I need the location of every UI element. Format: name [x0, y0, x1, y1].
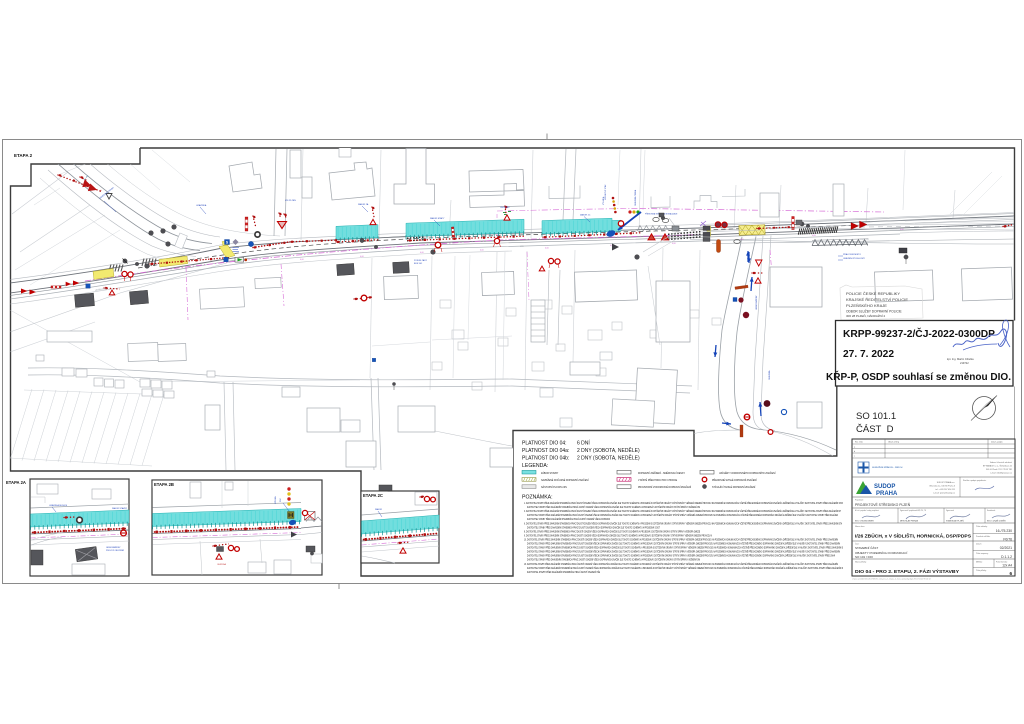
svg-text:12x A4: 12x A4	[1002, 564, 1012, 568]
svg-text:4,00: 4,00	[900, 229, 904, 231]
svg-text:Název akce:: Název akce:	[855, 526, 865, 528]
svg-text:306 28 PLZEŇ, NÁDRAŽNÍ 2: 306 28 PLZEŇ, NÁDRAŽNÍ 2	[846, 313, 886, 318]
svg-text:TRAŤ 180: TRAŤ 180	[860, 238, 870, 241]
svg-text:4,00: 4,00	[480, 250, 484, 252]
svg-text:4,00: 4,00	[740, 239, 744, 241]
svg-text:LEGENDA:: LEGENDA:	[522, 463, 548, 469]
svg-text:NÁSTUPNÍ PLOCHA IZS: NÁSTUPNÍ PLOCHA IZS	[541, 486, 567, 489]
svg-text:Obsah změny: Obsah změny	[888, 442, 899, 444]
svg-text:NAVRŽENÉ DOČASNÉ DOPRAVNÍ ZNAČ: NAVRŽENÉ DOČASNÉ DOPRAVNÍ ZNAČENÍ	[541, 479, 589, 482]
svg-text:ETAPA 2B: ETAPA 2B	[154, 482, 174, 487]
svg-text:JEDNOSMĚRNÝ: JEDNOSMĚRNÝ	[106, 546, 121, 549]
svg-text:PROVOZ OBJÍZDNÉ: PROVOZ OBJÍZDNÉ	[106, 549, 125, 552]
svg-text:D.1.1.2: D.1.1.2	[1001, 555, 1012, 559]
svg-text:16-/75.230: 16-/75.230	[996, 529, 1012, 533]
svg-text:POZNÁMKA:: POZNÁMKA:	[522, 494, 553, 501]
svg-text:ZÁBOR ETAPY: ZÁBOR ETAPY	[430, 217, 445, 220]
svg-text:PŘENOSNÉ SVISLÉ DOPRAVNÍ ZNAČE: PŘENOSNÉ SVISLÉ DOPRAVNÍ ZNAČENÍ	[712, 479, 757, 482]
svg-text:PLZEŇSKÉHO KRAJE: PLZEŇSKÉHO KRAJE	[846, 303, 887, 308]
svg-text:Datum:: Datum:	[976, 543, 982, 546]
svg-text:kpt. Ing. Martin Cibulka: kpt. Ing. Martin Cibulka	[947, 357, 974, 361]
svg-text:Razítko a podpis projektanta:: Razítko a podpis projektanta:	[963, 479, 987, 482]
svg-text:UZAVÍRKA: UZAVÍRKA	[196, 204, 207, 207]
svg-text:MIROSLAV PINKAS: MIROSLAV PINKAS	[900, 520, 919, 523]
svg-text:4,00: 4,00	[812, 235, 816, 237]
svg-text:Rev. číslo: Rev. číslo	[855, 442, 863, 444]
svg-text:OBJÍZDNÁ: OBJÍZDNÁ	[217, 563, 227, 566]
svg-text:2 DNY (SOBOTA, NEDĚLE): 2 DNY (SOBOTA, NEDĚLE)	[577, 453, 640, 461]
svg-text:KRPP-99237-2/ČJ-2022-0300DP: KRPP-99237-2/ČJ-2022-0300DP	[843, 327, 995, 340]
svg-text:ODBOR SLUŽBY DOPRAVNÍ POLICIE: ODBOR SLUŽBY DOPRAVNÍ POLICIE	[846, 309, 902, 314]
svg-text:ZÁBOR 2C: ZÁBOR 2C	[580, 214, 591, 217]
svg-text:4,00: 4,00	[672, 243, 676, 245]
svg-text:PRACOVNÍ MÍSTO: PRACOVNÍ MÍSTO	[843, 253, 861, 256]
svg-text:2 DNY (SOBOTA, NEDĚLE): 2 DNY (SOBOTA, NEDĚLE)	[577, 446, 640, 454]
svg-text:ZÁBOR STAVBY: ZÁBOR STAVBY	[541, 472, 559, 475]
svg-text:STÁVAJÍCÍ SVISLÉ DOPRAVNÍ ZNAČ: STÁVAJÍCÍ SVISLÉ DOPRAVNÍ ZNAČENÍ	[712, 486, 756, 489]
svg-text:ING. OTA MILSIMER: ING. OTA MILSIMER	[855, 520, 874, 523]
svg-text:4,00: 4,00	[360, 256, 364, 258]
svg-text:STANISLAV PLZEŇ: STANISLAV PLZEŇ	[946, 520, 964, 523]
svg-text:e-mail: praha@sudop.cz: e-mail: praha@sudop.cz	[933, 493, 955, 495]
svg-text:SUDOP PRAHA a.s.: SUDOP PRAHA a.s.	[937, 481, 956, 484]
svg-text:ZÁBOR 2A: ZÁBOR 2A	[358, 203, 369, 206]
svg-text:SUDOP: SUDOP	[874, 484, 895, 490]
svg-text:SO 101 / DIO: SO 101 / DIO	[855, 555, 874, 559]
svg-text:ING. LUKÁŠ DUNĚK: ING. LUKÁŠ DUNĚK	[987, 520, 1006, 523]
svg-text:Poměrné měřítko:: Poměrné měřítko:	[976, 535, 991, 538]
svg-text:JEDNOSMĚRNÝ: JEDNOSMĚRNÝ	[755, 295, 758, 310]
svg-text:POLICIE ČESKÉ REPUBLIKY: POLICIE ČESKÉ REPUBLIKY	[846, 291, 900, 296]
svg-text:4,00: 4,00	[300, 259, 304, 261]
svg-text:6: 6	[1009, 571, 1012, 576]
svg-text:VÝLUKA: VÝLUKA	[274, 496, 277, 504]
svg-text:(O): (O)	[820, 229, 825, 233]
svg-text:tel.: +420 267 094 111: tel.: +420 267 094 111	[935, 488, 956, 491]
svg-text:Číslo zakázky:: Číslo zakázky:	[976, 525, 988, 528]
svg-text:ČÁST D: ČÁST D	[856, 424, 894, 435]
svg-text:OMEZENÍ RYCHLOSTI: OMEZENÍ RYCHLOSTI	[843, 257, 865, 260]
svg-text:UZÁVĚRY VODOROVNÉHO DOPRAVNÍHO: UZÁVĚRY VODOROVNÉHO DOPRAVNÍHO ZNAČENÍ	[719, 472, 776, 475]
svg-text:Číslo přílohy:: Číslo přílohy:	[976, 569, 987, 572]
svg-text:PRAHA: PRAHA	[876, 491, 898, 497]
svg-text:PLATNOST DIO 04a:: PLATNOST DIO 04a:	[522, 448, 569, 454]
svg-text:Olšanská 1a, 130 80 Praha 3: Olšanská 1a, 130 80 Praha 3	[929, 486, 956, 488]
svg-text:219722: 219722	[960, 361, 969, 365]
svg-text:STAVEBNÍ ČÁST: STAVEBNÍ ČÁST	[855, 545, 878, 550]
svg-text:c: c	[854, 456, 855, 458]
svg-text:Vedoucí účastník sdružení: Vedoucí účastník sdružení	[990, 461, 1013, 464]
svg-text:ETAPA 2A: ETAPA 2A	[6, 480, 26, 485]
svg-text:KRAJSKÉ ŘEDITELSTVÍ POLICIE: KRAJSKÉ ŘEDITELSTVÍ POLICIE	[846, 297, 908, 302]
svg-text:VÝLUKOVÝ STAV: VÝLUKOVÝ STAV	[604, 184, 607, 200]
svg-text:SO 101.1: SO 101.1	[856, 411, 896, 422]
svg-text:UZAVÍRKA SILNICE: UZAVÍRKA SILNICE	[49, 504, 68, 507]
svg-text:ZÁBOR: ZÁBOR	[375, 508, 382, 511]
svg-text:Vypracoval: Vypracoval	[946, 510, 954, 512]
svg-text:V MÍSTĚ PŘECHODU PRO CHODCE: V MÍSTĚ PŘECHODU PRO CHODCE	[638, 479, 678, 482]
svg-text:PLATNOST DIO 04:: PLATNOST DIO 04:	[522, 441, 567, 447]
svg-text:ETAPA 2C: ETAPA 2C	[363, 493, 383, 498]
svg-text:4,00: 4,00	[545, 248, 549, 250]
svg-text:POSUN ZAST.: POSUN ZAST.	[414, 259, 428, 262]
svg-text:PROVIZORNÍ VODOROVNÉ DOPRAVNÍ: PROVIZORNÍ VODOROVNÉ DOPRAVNÍ ZNAČENÍ	[638, 486, 691, 489]
svg-text:27. 7. 2022: 27. 7. 2022	[843, 349, 894, 360]
svg-text:SDRUŽENÍ KŘIMICE - ZBŮCH: SDRUŽENÍ KŘIMICE - ZBŮCH	[872, 466, 903, 469]
svg-text:c:\pw_workdir\dms45176\DIO_04_: c:\pw_workdir\dms45176\DIO_04_pro_2_etap…	[852, 578, 932, 581]
svg-text:4,00: 4,00	[420, 252, 424, 254]
svg-text:Měřítko:: Měřítko:	[976, 561, 983, 564]
svg-text:I/26 PLZEŇ: I/26 PLZEŇ	[285, 199, 296, 202]
svg-text:301 00 Plzeň / IČO 279 87 281: 301 00 Plzeň / IČO 279 87 281	[986, 468, 1012, 471]
svg-text:BP SANACE s.r.o., Štefánikova: BP SANACE s.r.o., Štefánikova 21	[983, 465, 1012, 468]
svg-text:Číslo soupravy:: Číslo soupravy:	[976, 552, 989, 555]
svg-text:6 DNÍ: 6 DNÍ	[577, 440, 590, 447]
svg-text:Projektant:: Projektant:	[855, 499, 864, 502]
svg-text:OBJÍZDNÁ: OBJÍZDNÁ	[768, 370, 771, 380]
svg-text:CHODNÍK: CHODNÍK	[500, 206, 510, 209]
svg-text:DOPRAVNÍ ZAŘÍZENÍ - SMĚROVACÍ: DOPRAVNÍ ZAŘÍZENÍ - SMĚROVACÍ DESKY	[638, 472, 685, 475]
svg-text:I/26 ZBŮCH, x V SÍDLIŠTI, HORN: I/26 ZBŮCH, x V SÍDLIŠTI, HORNICKÁ, DSP/…	[855, 532, 971, 539]
svg-text:PLATNOST DIO 04b:: PLATNOST DIO 04b:	[522, 455, 569, 461]
svg-text:ETAPA 2: ETAPA 2	[14, 153, 33, 158]
svg-text:e-mail: info@bpsanace.cz: e-mail: info@bpsanace.cz	[990, 473, 1012, 475]
svg-text:BUS X41: BUS X41	[414, 263, 423, 265]
svg-text:OBJÍZDNÁ TRASA: OBJÍZDNÁ TRASA	[634, 189, 637, 206]
svg-text:02/2021: 02/2021	[1000, 546, 1012, 550]
svg-text:F0/76: F0/76	[1003, 538, 1012, 542]
svg-text:Datum, podpis: Datum, podpis	[991, 441, 1003, 444]
svg-text:ZÁBOR STAVBY: ZÁBOR STAVBY	[112, 507, 128, 510]
svg-text:DIO 04 - PRO 2. ETAPU, 2. FÁZI: DIO 04 - PRO 2. ETAPU, 2. FÁZI VÝSTAVBY	[855, 568, 959, 574]
svg-text:Název přílohy:: Název přílohy:	[855, 562, 867, 564]
svg-text:KŘP-P, OSDP souhlasí se změnou: KŘP-P, OSDP souhlasí se změnou DIO.	[826, 370, 1011, 383]
svg-text:PROJEKTOVÉ STŘEDISKO PLZEŇ: PROJEKTOVÉ STŘEDISKO PLZEŇ	[855, 502, 911, 507]
